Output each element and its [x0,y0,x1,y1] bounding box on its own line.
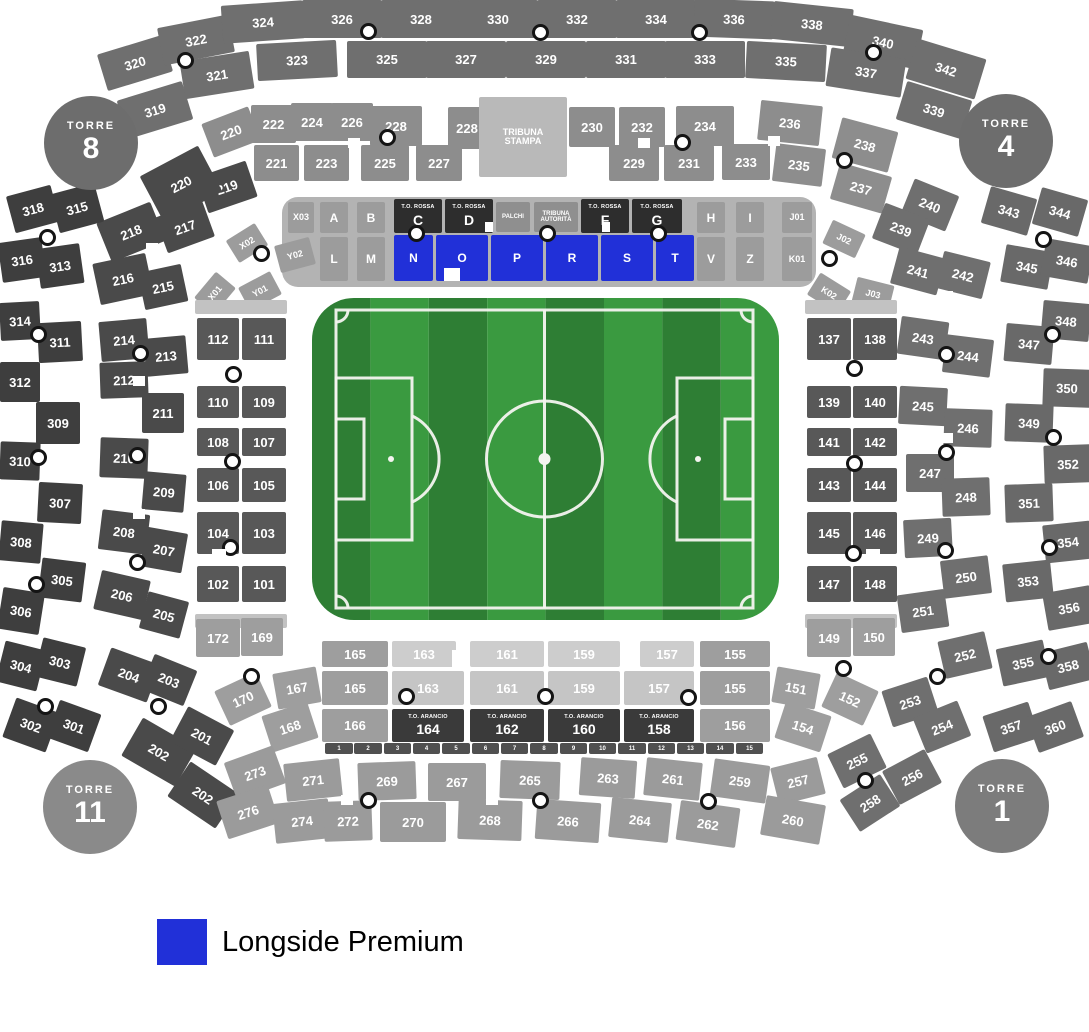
section-138: 138 [853,318,897,360]
gate-marker-icon [539,225,556,242]
pitch-markings [312,298,779,620]
section-169: 169 [241,618,283,656]
section-172: 172 [196,619,240,657]
section-344: 344 [1032,187,1089,237]
section-h: H [697,202,725,233]
section-251: 251 [897,589,950,633]
section-164: T.O. ARANCIO164 [392,709,464,742]
gate-marker-icon [537,688,554,705]
section-161: 161 [470,641,544,667]
section-168: 168 [261,702,318,753]
section-5: 5 [442,743,470,754]
section-9: 9 [560,743,587,754]
section-167: 167 [272,666,322,709]
section-149: 149 [807,619,851,657]
section-223: 223 [304,145,349,181]
section-233: 233 [722,144,770,180]
walkway-gap [133,509,145,519]
stadium-seating-map: 3203223243263283303323343363383403423193… [0,0,1089,1032]
gate-marker-icon [360,792,377,809]
section-150: 150 [853,618,895,656]
section-205: 205 [139,591,189,639]
section-250: 250 [940,555,992,599]
section-143: 143 [807,468,851,502]
section-318: 318 [6,185,60,234]
section-158: T.O. ARANCIO158 [624,709,694,742]
gate-marker-icon [700,793,717,810]
section-222: 222 [251,105,296,143]
section-i: I [736,202,764,233]
gate-marker-icon [691,24,708,41]
section-j01: J01 [782,202,812,233]
gate-marker-icon [857,772,874,789]
section-12: 12 [648,743,675,754]
section-306: 306 [0,587,45,635]
gate-marker-icon [846,360,863,377]
torre-8-badge: TORRE8 [44,96,138,190]
gate-marker-icon [225,366,242,383]
section-s[interactable]: S [601,235,653,281]
section-141: 141 [807,428,851,456]
section-160: T.O. ARANCIO160 [548,709,620,742]
section-338: 338 [770,1,854,47]
walkway-gap [638,138,650,148]
walkway-gap [768,136,780,146]
section-305: 305 [38,557,87,602]
gate-marker-icon [1041,539,1058,556]
section-148: 148 [853,566,897,602]
section-227: 227 [416,145,462,181]
section-area [195,300,287,314]
section-267: 267 [428,763,486,801]
gate-marker-icon [821,250,838,267]
section-161: 161 [470,671,544,705]
section-147: 147 [807,566,851,602]
section-261: 261 [643,757,703,801]
section-2: 2 [354,743,382,754]
walkway-gap [866,549,880,561]
section-13: 13 [677,743,704,754]
section-225: 225 [361,145,409,181]
gate-marker-icon [30,326,47,343]
section-n[interactable]: N [394,235,433,281]
gate-marker-icon [532,792,549,809]
section-x03: X03 [288,202,314,233]
section-144: 144 [853,468,897,502]
walkway-gap [444,268,460,281]
gate-marker-icon [253,245,270,262]
section-228: 228 [370,106,422,146]
section-307: 307 [37,482,83,524]
section-268: 268 [457,799,522,841]
section-l: L [320,237,348,281]
gate-marker-icon [938,346,955,363]
section-263: 263 [579,757,638,799]
walkway-gap [486,795,498,805]
section-p[interactable]: P [491,235,543,281]
section-350: 350 [1042,368,1089,408]
section-112: 112 [197,318,239,360]
section-224: 224 [291,103,333,141]
walkway-gap [602,222,610,232]
section-325: 325 [347,41,427,78]
walkway-gap [864,360,876,370]
section-343: 343 [981,186,1038,236]
section-303: 303 [34,637,86,686]
section-324: 324 [221,0,305,44]
gate-marker-icon [379,129,396,146]
section-142: 142 [853,428,897,456]
section-r[interactable]: R [546,235,598,281]
section-226: 226 [331,103,373,141]
section-248: 248 [941,477,990,517]
gate-marker-icon [129,447,146,464]
section-6: 6 [472,743,499,754]
legend: Longside Premium [157,919,464,965]
section-159: 159 [548,641,620,667]
section-229: 229 [609,145,659,181]
section-14: 14 [706,743,734,754]
walkway-gap [348,138,360,148]
gate-marker-icon [929,668,946,685]
section-315: 315 [50,183,105,234]
torre-1-badge: TORRE1 [955,759,1049,853]
section-330: 330 [458,0,538,38]
section-b: B [357,202,385,233]
section-327: 327 [426,41,506,78]
section-area [805,300,897,314]
section-165: 165 [322,641,388,667]
gate-marker-icon [937,542,954,559]
gate-marker-icon [845,545,862,562]
section-221: 221 [254,145,299,181]
section-207: 207 [140,527,188,574]
section-333: 333 [665,41,745,78]
gate-marker-icon [1040,648,1057,665]
section-111: 111 [242,318,286,360]
section-166: 166 [322,709,388,742]
section-4: 4 [413,743,440,754]
section-209: 209 [141,471,186,513]
section-151: 151 [771,666,821,709]
torre-4-badge: TORRE4 [959,94,1053,188]
section-231: 231 [664,145,714,181]
gate-marker-icon [836,152,853,169]
walkway-gap [452,650,469,667]
walkway-gap [214,360,226,370]
section-k01: K01 [782,237,812,281]
gate-marker-icon [177,52,194,69]
section-235: 235 [772,143,826,187]
gate-marker-icon [532,24,549,41]
section-108: 108 [197,428,239,456]
section-162: T.O. ARANCIO162 [470,709,544,742]
section-328: 328 [381,0,461,38]
section-110: 110 [197,386,239,418]
section-137: 137 [807,318,851,360]
section-11: 11 [618,743,646,754]
section-7: 7 [501,743,528,754]
section-t[interactable]: T [656,235,694,281]
gate-marker-icon [150,698,167,715]
gate-marker-icon [865,44,882,61]
gate-marker-icon [360,23,377,40]
section-301: 301 [46,700,101,753]
section-v: V [697,237,725,281]
gate-marker-icon [835,660,852,677]
section-312: 312 [0,362,40,402]
walkway-gap [136,640,148,650]
gate-marker-icon [938,444,955,461]
gate-marker-icon [846,455,863,472]
section-332: 332 [537,0,617,38]
gate-marker-icon [1044,326,1061,343]
section-163: 163 [392,641,456,667]
section-323: 323 [256,40,338,81]
section-15: 15 [736,743,763,754]
gate-marker-icon [224,453,241,470]
gate-marker-icon [30,449,47,466]
gate-marker-icon [37,698,54,715]
section-260: 260 [760,795,826,845]
walkway-gap [620,650,637,667]
gate-marker-icon [1035,231,1052,248]
legend-swatch-longside-premium [157,919,207,965]
section-m: M [357,237,385,281]
section-109: 109 [242,386,286,418]
gate-marker-icon [680,689,697,706]
section-236: 236 [757,100,823,146]
gate-marker-icon [28,576,45,593]
section-105: 105 [242,468,286,502]
section-145: 145 [807,512,851,554]
section-241: 241 [890,246,946,295]
section-156: 156 [700,709,770,742]
section-271: 271 [283,758,343,802]
walkway-gap [146,243,158,253]
section-101: 101 [242,566,286,602]
section-218: 218 [96,202,166,263]
section-1: 1 [325,743,353,754]
section-155: 155 [700,641,770,667]
section-259: 259 [710,758,771,803]
section-z: Z [736,237,764,281]
section-356: 356 [1042,585,1089,631]
gate-marker-icon [243,668,260,685]
gate-marker-icon [408,225,425,242]
section-265: 265 [499,760,560,800]
section-264: 264 [608,797,672,843]
walkway-gap [941,291,953,301]
section-351: 351 [1004,483,1053,523]
section-155: 155 [700,671,770,705]
gate-marker-icon [39,229,56,246]
section-107: 107 [242,428,286,456]
section-230: 230 [569,107,615,147]
section-334: 334 [616,0,696,38]
walkway-gap [133,376,145,386]
section-140: 140 [853,386,897,418]
walkway-gap [341,795,353,805]
section-139: 139 [807,386,851,418]
section-165: 165 [322,671,388,705]
gate-marker-icon [129,554,146,571]
section-215: 215 [138,264,189,310]
section-103: 103 [242,512,286,554]
section-245: 245 [898,386,948,426]
section-352: 352 [1043,444,1089,484]
section-211: 211 [142,393,184,433]
section-335: 335 [745,41,827,82]
section-3: 3 [384,743,411,754]
torre-11-badge: TORRE11 [43,760,137,854]
gate-marker-icon [1045,429,1062,446]
section-329: 329 [506,41,586,78]
section-252: 252 [937,631,992,679]
section-8: 8 [530,743,558,754]
section-palchi: PALCHI [496,202,530,232]
gate-marker-icon [398,688,415,705]
section-331: 331 [586,41,666,78]
section-308: 308 [0,520,44,564]
section-tribuna: TRIBUNA STAMPA [479,97,567,177]
section-213: 213 [143,335,188,377]
section-309: 309 [36,402,80,444]
section-270: 270 [380,802,446,842]
football-pitch [312,298,779,620]
walkway-gap [941,433,953,443]
section-157: 157 [640,641,694,667]
gate-marker-icon [650,225,667,242]
section-313: 313 [35,243,84,289]
legend-label: Longside Premium [222,926,464,959]
section-154: 154 [774,702,831,753]
section-10: 10 [589,743,616,754]
section-a: A [320,202,348,233]
gate-marker-icon [674,134,691,151]
walkway-gap [212,549,226,561]
section-360: 360 [1026,701,1084,753]
gate-marker-icon [132,345,149,362]
section-159: 159 [548,671,620,705]
section-106: 106 [197,468,239,502]
walkway-gap [485,222,493,232]
section-102: 102 [197,566,239,602]
